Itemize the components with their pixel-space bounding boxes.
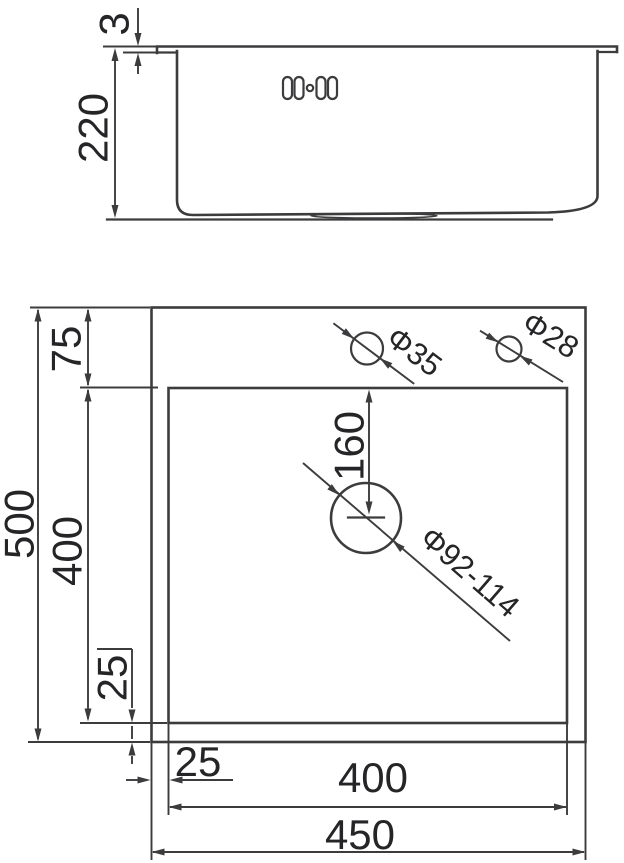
rim-thickness-label: 3 <box>91 12 138 35</box>
sink-outer-outline <box>152 308 586 743</box>
faucet-hole-callout: Φ35 <box>333 320 448 384</box>
left-inset-label: 25 <box>175 738 222 785</box>
sink-technical-drawing: 3 220 Φ35 Φ28 <box>0 0 624 863</box>
dimension-bottom-inset: 25 <box>89 649 136 764</box>
sink-rim-line <box>157 47 617 54</box>
dimension-rim-thickness: 3 <box>91 8 160 74</box>
soap-hole-callout: Φ28 <box>480 305 585 382</box>
deck-label: 75 <box>43 326 90 373</box>
overall-depth-label: 500 <box>0 489 43 559</box>
overflow-holes-icon <box>283 77 337 99</box>
bottom-inset-label: 25 <box>89 655 136 702</box>
sink-body-outline <box>177 51 598 215</box>
dimension-overall-depth: 500 <box>0 309 43 742</box>
dimension-left-inset: 25 <box>126 738 233 785</box>
drain-recess-profile <box>311 214 437 219</box>
side-elevation-view: 3 220 <box>70 8 617 220</box>
drain-hole-callout: Φ92-114 <box>303 463 526 641</box>
depth-label: 220 <box>70 93 117 163</box>
faucet-hole-label: Φ35 <box>380 320 448 384</box>
overall-width-label: 450 <box>325 811 395 858</box>
dimension-bowl-depth: 400 <box>44 389 92 722</box>
drain-offset-label: 160 <box>326 411 373 481</box>
drawing-svg: 3 220 Φ35 Φ28 <box>0 0 624 863</box>
dimension-overall-width: 450 <box>152 811 586 858</box>
bowl-width-label: 400 <box>338 754 408 801</box>
soap-hole-label: Φ28 <box>516 305 585 366</box>
dimension-bowl-width: 400 <box>169 754 568 811</box>
dimension-drain-offset: 160 <box>326 390 373 515</box>
bowl-depth-label: 400 <box>44 516 91 586</box>
dimension-deck: 75 <box>43 309 92 387</box>
dimension-depth: 220 <box>70 48 119 218</box>
plan-view: Φ35 Φ28 Φ92-114 160 <box>0 305 585 860</box>
